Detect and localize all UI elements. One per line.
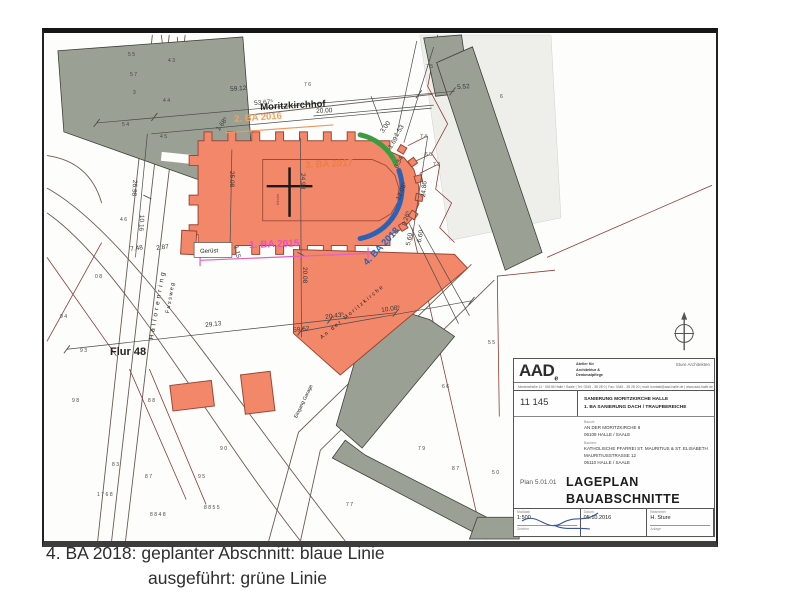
dimension-label: 26.98 xyxy=(130,180,137,197)
caption-line-2: ausgeführt: grüne Linie xyxy=(148,568,327,589)
plan-number: Plan 5.01.01 xyxy=(520,479,557,486)
dimension-label: 53.67⁵ xyxy=(254,100,273,108)
page: Moritzkirchhof 2. BA 2016 3. BA 2017 1. … xyxy=(0,0,800,600)
parcel-number: 88 xyxy=(148,399,157,404)
bauort-line: AN DER MORITZKIRCHE 8 xyxy=(584,425,640,432)
project-row: 11 145 SANIERUNG MORITZKIRCHE HALLE 1. B… xyxy=(514,391,714,417)
firm-right-name: Sture Architekten xyxy=(676,362,710,367)
label-ba2015: 1. BA 2015 xyxy=(249,239,300,251)
label-geruest: Gerüst xyxy=(200,248,218,255)
parcel-number: 6 xyxy=(500,95,504,100)
parcel-number: 44 xyxy=(163,99,172,104)
parcel-number: 77 xyxy=(346,503,355,508)
signature xyxy=(514,503,604,537)
label-ba2017: 3. BA 2017 xyxy=(305,159,353,171)
project-title: SANIERUNG MORITZKIRCHE HALLE 1. BA SANIE… xyxy=(578,391,714,416)
dimension-label: 5.52 xyxy=(457,84,470,91)
parcel-number: 76 xyxy=(304,83,313,88)
dimension-label: 25.08 xyxy=(228,171,235,187)
dimension-label: 10.16 xyxy=(137,215,144,232)
title-block-footer: Maßstab 1:500 Zeichen Datum 05.10.2016 B… xyxy=(514,509,714,536)
title-block-header: AADe Atelier für Architektur & Denkmalpf… xyxy=(514,359,714,383)
scanned-site-plan: Moritzkirchhof 2. BA 2016 3. BA 2017 1. … xyxy=(42,28,718,547)
parcel-number: 55 xyxy=(128,53,137,58)
title-block: AADe Atelier für Architektur & Denkmalpf… xyxy=(513,358,715,537)
bauort-block: Bauort: AN DER MORITZKIRCHE 8 06108 HALL… xyxy=(584,420,640,439)
dimension-label: 59.12 xyxy=(230,86,247,94)
bauherr-line: MAURITIUSSTRASSE 12 xyxy=(584,453,708,460)
parcel-number: 73 xyxy=(433,163,442,168)
dimension-label: 1.15 xyxy=(232,245,241,259)
parcel-number: 87 xyxy=(452,467,461,472)
bauort-line: 06108 HALLE / SAALE xyxy=(584,432,640,439)
project-title-line1: SANIERUNG MORITZKIRCHE HALLE xyxy=(584,396,714,404)
parcel-number: 08 xyxy=(95,275,104,280)
parcel-number: 79 xyxy=(418,447,427,452)
parcel-number: 83 xyxy=(112,463,121,468)
parcel-number: 65 xyxy=(425,153,434,158)
parcel-number: 55 xyxy=(488,341,497,346)
parcel-number: 90 xyxy=(220,447,229,452)
caption-line-1: 4. BA 2018: geplanter Abschnitt: blaue L… xyxy=(46,543,385,564)
bauherr-line: KATHOLISCHE PFARREI ST. MAURITIUS & ST. … xyxy=(584,446,708,453)
parcel-number: 75 xyxy=(426,65,435,70)
label-kirche: Kirche xyxy=(276,194,280,205)
parcel-number: 54 xyxy=(122,123,131,128)
bearbeiter-cell: Bearbeiter H. Sture Anlage xyxy=(647,509,714,536)
parcel-number: 46 xyxy=(120,218,129,223)
firm-address: Niederstraße 11 · 06108 Halle / Saale | … xyxy=(514,383,714,391)
bearbeiter-value: H. Sture xyxy=(650,515,710,521)
parcel-number: 66 xyxy=(442,385,451,390)
parcel-number: 8855 xyxy=(204,506,221,511)
parcel-number: 87 xyxy=(145,475,154,480)
parcel-number: 8848 xyxy=(150,513,167,518)
north-arrow-icon xyxy=(674,312,694,351)
parcel-number: 50 xyxy=(492,471,501,476)
project-title-line2: 1. BA SANIERUNG DACH / TRAUFBEREICHE xyxy=(584,404,714,412)
firm-line: Denkmalpflege xyxy=(576,373,603,379)
dimension-label: 24.98 xyxy=(299,173,306,189)
address-section: Bauort: AN DER MORITZKIRCHE 8 06108 HALL… xyxy=(514,417,714,473)
project-number: 11 145 xyxy=(514,391,578,416)
parcel-number: 1768 xyxy=(97,493,114,498)
parcel-number: 74 xyxy=(420,135,429,140)
bearbeiter-label: Bearbeiter xyxy=(650,510,710,514)
parcel-number: 98 xyxy=(72,399,81,404)
bauherr-line: 06110 HALLE / SAALE xyxy=(584,460,708,467)
parcel-number: 3 xyxy=(133,91,137,96)
parcel-number: 93 xyxy=(80,349,89,354)
dimension-label: 20.00 xyxy=(316,108,333,115)
label-flur48: Flur 48 xyxy=(110,347,146,358)
parcel-number: 43 xyxy=(168,59,177,64)
firm-name: Atelier für Architektur & Denkmalpflege xyxy=(576,362,603,379)
anlage-label: Anlage xyxy=(650,525,710,531)
aad-logo-sub: e xyxy=(554,375,557,382)
bauherr-block: Bauherr: KATHOLISCHE PFARREI ST. MAURITI… xyxy=(584,441,708,466)
dimension-label: 20.08 xyxy=(301,267,308,283)
aad-logo: AADe xyxy=(519,361,558,382)
plan-title: LAGEPLAN xyxy=(566,475,639,489)
parcel-number: 95 xyxy=(198,475,207,480)
parcel-number: 57 xyxy=(130,73,139,78)
parcel-number: 94 xyxy=(60,315,69,320)
parcel-number: 45 xyxy=(160,135,169,140)
